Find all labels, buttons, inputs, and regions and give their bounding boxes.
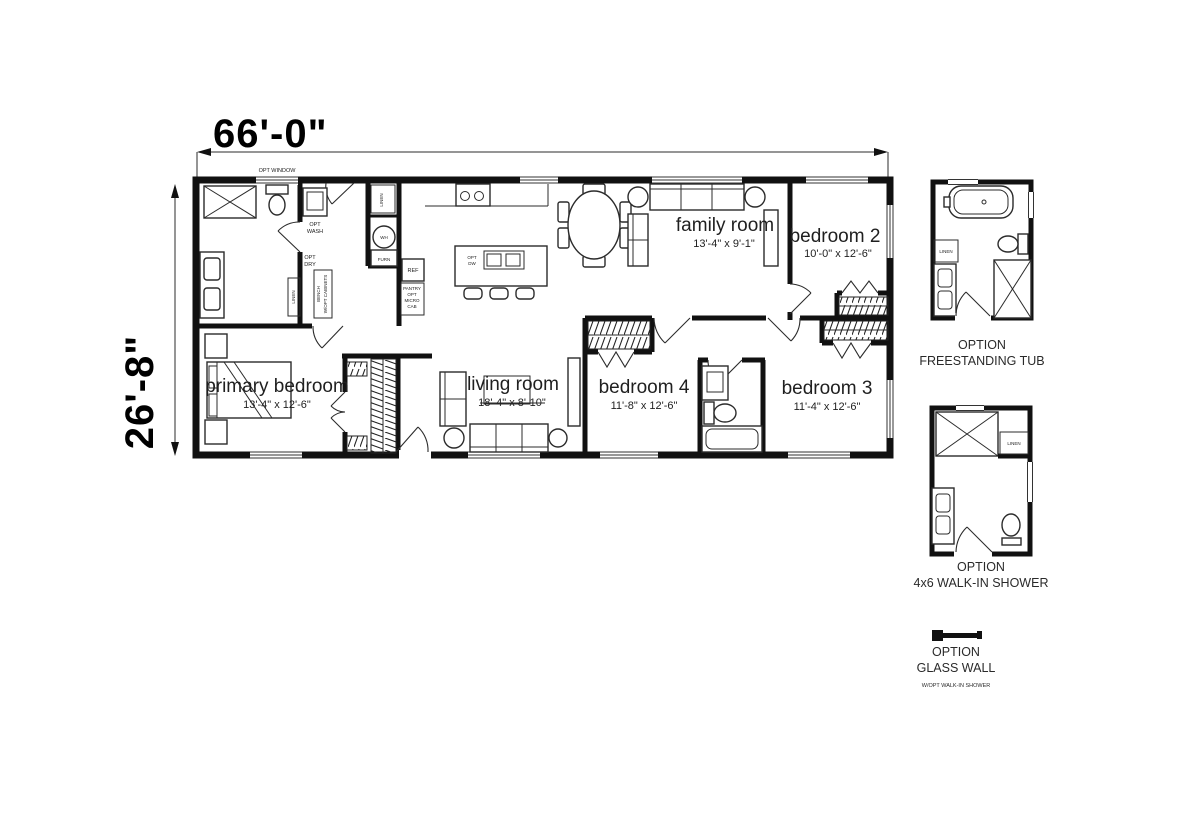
door-arc — [768, 318, 800, 341]
hall-bathroom — [702, 366, 762, 452]
linen-label: LINEN — [939, 249, 952, 254]
dimension-left: 26'-8" — [118, 184, 179, 456]
end-table — [444, 428, 464, 448]
nightstand — [205, 420, 227, 444]
kitchen: REF PANTRY OPT MICRO CAB OPT DW — [401, 184, 548, 315]
mechanical-closet: LINEN WH FURN — [371, 185, 397, 266]
option-walk-in-shower: LINEN OPTION 4x6 WALK-IN SHOWER — [914, 403, 1049, 590]
floor-plan-canvas: 66'-0" 26'-8" — [0, 0, 1200, 818]
bifold-door — [833, 343, 871, 358]
window — [250, 450, 302, 460]
primary-bedroom: primary bedroom 13'-4" x 12'-6" — [205, 334, 349, 444]
kitchen-island: OPT DW — [455, 246, 547, 286]
dining-table — [568, 191, 620, 259]
window — [806, 175, 868, 185]
vanity-double-sink — [934, 264, 956, 316]
toilet — [266, 185, 288, 215]
window — [256, 175, 298, 185]
opt-wash-label: WASH — [307, 229, 323, 235]
vanity-sink — [702, 366, 728, 400]
linen-label: LINEN — [291, 290, 296, 303]
opt-dw-label: DW — [468, 261, 476, 266]
utility-room: OPT WASH OPT DRY BENCH W/OPT CABINETS — [303, 188, 332, 318]
furn-label: FURN — [378, 257, 391, 262]
option1-subtitle: FREESTANDING TUB — [919, 354, 1044, 368]
end-table — [745, 187, 765, 207]
entry-opening — [399, 450, 431, 460]
living-room: living room 18'-4" x 8'-10" — [440, 358, 580, 452]
door-arc — [396, 427, 428, 452]
option2-subtitle: 4x6 WALK-IN SHOWER — [914, 576, 1049, 590]
room-label-family: family room — [676, 215, 774, 236]
window — [520, 175, 558, 185]
bench-label: BENCH — [316, 286, 321, 302]
nightstand — [205, 334, 227, 358]
toilet — [998, 234, 1028, 254]
family-room: family room 13'-4" x 9'-1" — [628, 184, 778, 266]
room-size-bedroom2: 10'-0" x 12'-6" — [804, 248, 872, 260]
bench-label: W/OPT CABINETS — [323, 275, 328, 313]
glass-wall-graphic — [932, 630, 982, 641]
end-table — [549, 429, 567, 447]
sofa — [470, 424, 548, 452]
shower — [994, 260, 1031, 318]
pantry-label: MICRO — [405, 298, 420, 303]
interior-walls — [196, 183, 890, 455]
closet-rod — [347, 436, 367, 450]
pantry-label: OPT — [407, 292, 417, 297]
bathtub — [702, 426, 762, 452]
room-size-bedroom4: 11'-8" x 12'-6" — [611, 400, 678, 412]
room-label-living: living room — [467, 374, 559, 395]
toilet — [1002, 514, 1021, 545]
closet-rod — [824, 321, 888, 340]
door-arc — [278, 222, 300, 252]
linen-label: LINEN — [379, 193, 384, 206]
door-arc — [326, 183, 354, 204]
bedroom-3: bedroom 3 11'-4" x 12'-6" — [782, 378, 873, 413]
pantry-label: CAB — [407, 304, 416, 309]
vanity-double-sink — [932, 488, 954, 544]
room-label-bedroom2: bedroom 2 — [790, 226, 881, 247]
door-arc — [331, 392, 345, 432]
bar-stools — [464, 288, 534, 299]
media-console — [568, 358, 580, 426]
opt-dry-label: DRY — [304, 262, 316, 268]
option2-title: OPTION — [957, 560, 1005, 574]
window — [788, 450, 850, 460]
room-size-primary: 13'-4" x 12'-6" — [243, 399, 311, 411]
furnace: FURN — [371, 250, 397, 266]
room-label-bedroom4: bedroom 4 — [599, 377, 690, 398]
water-heater: WH — [373, 226, 395, 248]
loveseat — [628, 214, 648, 266]
opt-wash-label: OPT — [309, 222, 321, 228]
range — [456, 184, 490, 206]
linen-closet: LINEN — [934, 240, 958, 262]
pantry: PANTRY OPT MICRO CAB — [401, 283, 424, 315]
dining-chair — [558, 228, 569, 248]
closet-rod — [347, 362, 367, 376]
opt-dw-label: OPT — [467, 255, 477, 260]
wh-label: WH — [380, 235, 388, 240]
shower — [204, 186, 256, 218]
option-glass-wall: OPTION GLASS WALL W/OPT WALK-IN SHOWER — [917, 630, 996, 689]
option3-title: OPTION — [932, 645, 980, 659]
option3-subtitle: GLASS WALL — [917, 661, 996, 675]
door-arc — [654, 318, 690, 343]
ref-label: REF — [408, 268, 420, 274]
linen-closet: LINEN — [1000, 432, 1028, 454]
room-label-bedroom3: bedroom 3 — [782, 378, 873, 399]
linen-closet: LINEN — [371, 185, 395, 213]
room-size-family: 13'-4" x 9'-1" — [693, 238, 755, 250]
bifold-door — [842, 281, 878, 293]
dimension-top: 66'-0" — [197, 112, 888, 179]
sofa — [650, 184, 744, 210]
bedroom-4: bedroom 4 11'-8" x 12'-6" — [599, 377, 690, 412]
washer — [303, 188, 327, 216]
door-arc — [790, 284, 811, 314]
bench-cabinet: BENCH W/OPT CABINETS — [314, 270, 332, 318]
refrigerator: REF — [402, 259, 424, 281]
door-arc — [955, 292, 991, 323]
option-freestanding-tub: LINEN OPTION FREESTANDING TUB — [919, 177, 1044, 368]
window — [885, 205, 895, 258]
closet-rod — [588, 321, 650, 349]
room-size-bedroom3: 11'-4" x 12'-6" — [794, 401, 861, 413]
room-label-primary: primary bedroom — [205, 376, 349, 397]
dimension-height-label: 26'-8" — [118, 335, 162, 450]
door-arc — [954, 527, 992, 559]
linen-label: LINEN — [1007, 441, 1020, 446]
option3-note: W/OPT WALK-IN SHOWER — [922, 683, 990, 689]
pantry-label: PANTRY — [403, 286, 421, 291]
window — [1025, 462, 1035, 502]
door-arc — [313, 326, 343, 348]
dining-area — [558, 184, 631, 267]
vanity-double-sink — [200, 252, 224, 318]
dimension-width-label: 66'-0" — [213, 112, 328, 156]
end-table — [628, 187, 648, 207]
window — [600, 450, 658, 460]
bedroom-2: bedroom 2 10'-0" x 12'-6" — [790, 226, 881, 260]
window — [1026, 192, 1036, 218]
shower — [936, 412, 998, 456]
option1-title: OPTION — [958, 338, 1006, 352]
bifold-door — [598, 352, 634, 367]
toilet — [704, 402, 736, 424]
primary-bathroom: LINEN — [200, 185, 300, 318]
closet-rod — [371, 359, 396, 453]
opt-window-label: OPT WINDOW — [259, 168, 297, 174]
floor-plan-drawing: 66'-0" 26'-8" — [0, 0, 1200, 818]
closet-rod — [839, 297, 888, 315]
dining-chair — [558, 202, 569, 222]
freestanding-tub — [944, 186, 1013, 218]
opt-dry-label: OPT — [304, 255, 316, 261]
armchair — [440, 372, 466, 426]
closet-rods — [347, 281, 888, 453]
window — [885, 380, 895, 438]
